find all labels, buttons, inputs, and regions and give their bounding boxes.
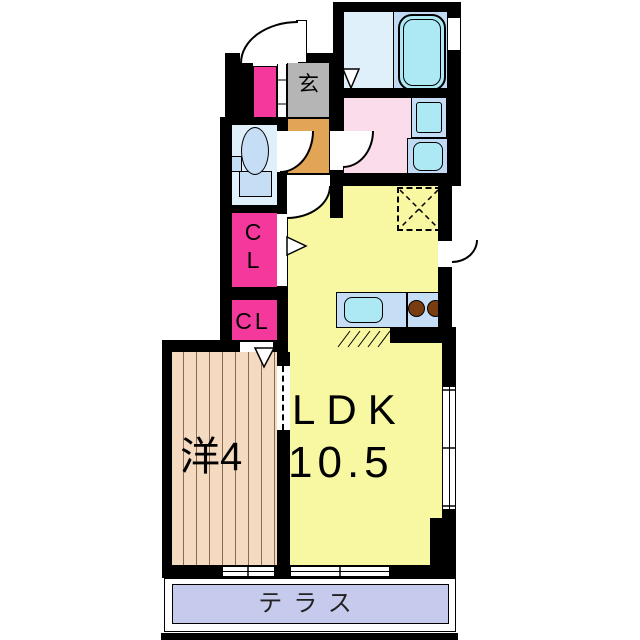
closet-upper-opening	[277, 213, 287, 287]
ldk-size-label: 10.5	[288, 440, 438, 486]
service-door-swing-icon	[452, 240, 478, 263]
wall	[333, 2, 461, 12]
closet-upper-label-line1: C	[228, 218, 278, 246]
window-center-line	[223, 571, 274, 572]
sliding-door-dash-line	[282, 366, 284, 430]
wall	[225, 63, 253, 119]
entrance-closet	[253, 66, 277, 118]
toilet-flush-handle	[231, 156, 242, 172]
entrance-label: 玄	[287, 74, 330, 96]
closet-upper-label-line2: L	[228, 246, 278, 274]
wall	[430, 518, 456, 568]
bathtub-inner-rim	[403, 19, 441, 86]
wall	[220, 287, 287, 300]
toilet-bowl-icon	[241, 127, 269, 175]
closet-lower-label: CL	[228, 309, 278, 333]
wall	[390, 327, 456, 343]
ldk-room	[287, 184, 443, 567]
refrigerator-space-icon	[397, 187, 441, 231]
bathroom-window	[448, 17, 460, 51]
western-room-window	[222, 566, 275, 577]
closet-lower-opening	[240, 342, 273, 352]
wall	[343, 88, 448, 97]
shoe-cabinet-strip	[277, 64, 287, 118]
kitchen-sink-icon	[344, 297, 383, 323]
ldk-side-window	[442, 386, 456, 510]
window-center-line	[291, 571, 389, 572]
ldk-terrace-window	[290, 566, 390, 577]
wall	[220, 205, 287, 213]
washing-machine-icon	[416, 102, 442, 133]
bathtub-icon	[398, 14, 446, 91]
stove-burner-icon	[408, 300, 425, 317]
floor-plan: 玄 C L CL LDK 10.5 洋4 テラス	[0, 0, 640, 640]
vanity-sink-icon	[413, 142, 443, 171]
washroom-door-opening	[330, 131, 343, 170]
window-center-line	[449, 387, 450, 509]
closet-upper-label: C L	[228, 218, 278, 274]
bathroom	[343, 8, 395, 97]
entrance-door-swing-icon	[240, 21, 298, 63]
sliding-door-icon	[277, 366, 290, 430]
washing-machine-pan-icon	[411, 97, 447, 138]
ldk-label: LDK	[292, 388, 442, 432]
wall	[162, 340, 172, 578]
terrace-edge-bar	[161, 633, 458, 640]
service-door-opening	[438, 240, 452, 268]
western-room-label: 洋4	[180, 436, 275, 478]
ldk-door-opening	[287, 175, 330, 186]
terrace-label: テラス	[172, 591, 449, 616]
